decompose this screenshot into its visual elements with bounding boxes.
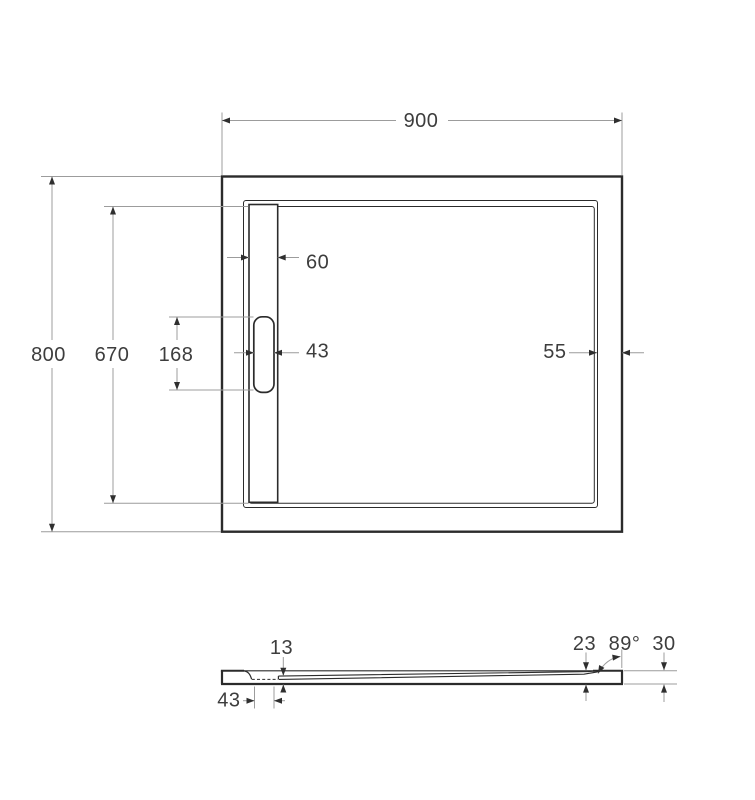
dim-drain-recess-width: 43 bbox=[217, 687, 285, 712]
dim-label-overall-width: 900 bbox=[404, 110, 439, 132]
dim-label-channel-width: 60 bbox=[306, 252, 329, 274]
dim-label-overall-height: 30 bbox=[652, 633, 675, 655]
dim-label-right-rim-width: 55 bbox=[543, 341, 566, 363]
section-view bbox=[221, 671, 623, 684]
dim-drain-slot-length: 168 bbox=[159, 317, 254, 390]
dim-label-basin-length: 670 bbox=[95, 344, 130, 366]
dim-label-wall-angle: 89° bbox=[609, 633, 641, 655]
floor-slope-upper-line bbox=[278, 671, 598, 676]
dim-label-floor-thickness-edge: 23 bbox=[573, 633, 596, 655]
dim-label-drain-recess-width: 43 bbox=[217, 690, 240, 712]
technical-drawing-page: 900 800 670 168 60 bbox=[0, 0, 755, 800]
dim-label-floor-thickness-drain: 13 bbox=[270, 637, 293, 659]
dim-overall-width: 900 bbox=[222, 110, 622, 175]
dim-label-overall-depth: 800 bbox=[31, 344, 66, 366]
drain-recess-curve bbox=[244, 671, 252, 679]
dim-wall-angle: 89° bbox=[598, 633, 640, 674]
shower-tray-drawing: 900 800 670 168 60 bbox=[0, 0, 755, 800]
dim-label-drain-slot-width: 43 bbox=[306, 341, 329, 363]
section-dimensions: 13 43 23 89° 30 bbox=[217, 633, 677, 712]
dim-floor-thickness-at-edge: 23 bbox=[573, 633, 596, 701]
drain-slot bbox=[254, 317, 274, 393]
plan-dimensions: 900 800 670 168 60 bbox=[31, 110, 644, 532]
dim-right-rim-width: 55 bbox=[543, 341, 644, 363]
dim-label-drain-slot-length: 168 bbox=[159, 344, 194, 366]
